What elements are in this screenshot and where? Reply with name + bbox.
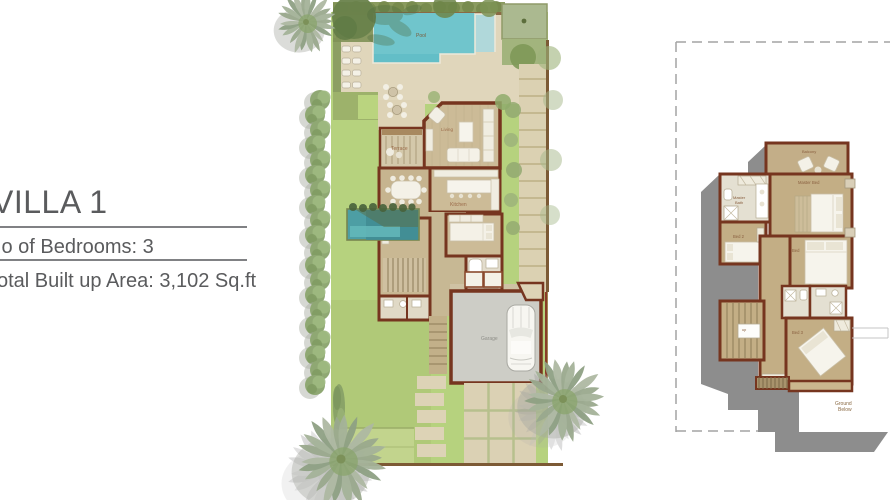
svg-text:Master Bed: Master Bed bbox=[798, 180, 820, 185]
svg-text:Kitchen: Kitchen bbox=[450, 202, 467, 208]
svg-text:Bed: Bed bbox=[792, 248, 800, 253]
svg-text:Living: Living bbox=[441, 127, 453, 132]
svg-text:Garage: Garage bbox=[481, 336, 498, 342]
svg-text:Balcony: Balcony bbox=[802, 149, 816, 154]
svg-text:Pool: Pool bbox=[416, 33, 426, 39]
svg-text:Bed 2: Bed 2 bbox=[733, 234, 745, 239]
svg-text:Bed 3: Bed 3 bbox=[792, 330, 804, 335]
svg-text:Below: Below bbox=[838, 407, 852, 413]
svg-text:up: up bbox=[742, 328, 746, 332]
svg-text:Bath: Bath bbox=[735, 200, 743, 205]
svg-text:Terrace: Terrace bbox=[391, 146, 408, 152]
